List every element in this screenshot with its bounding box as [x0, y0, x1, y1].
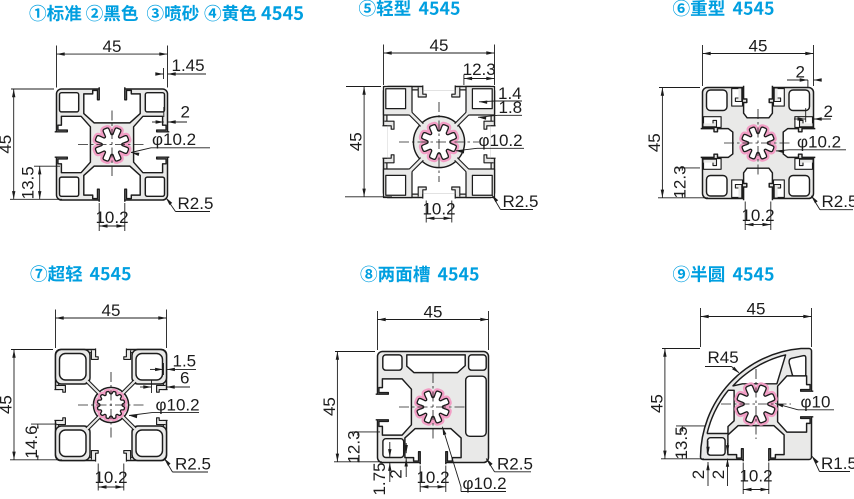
svg-text:1.45: 1.45	[172, 56, 205, 75]
svg-text:φ10.2: φ10.2	[479, 131, 523, 150]
svg-text:2: 2	[181, 103, 190, 122]
svg-text:10.2: 10.2	[94, 468, 127, 487]
svg-text:R1.5: R1.5	[821, 454, 854, 473]
svg-text:13.5: 13.5	[19, 166, 38, 199]
svg-text:13.5: 13.5	[672, 426, 691, 459]
svg-text:45: 45	[647, 394, 666, 413]
svg-text:45: 45	[0, 395, 16, 414]
svg-text:10.2: 10.2	[416, 468, 449, 487]
svg-text:10.2: 10.2	[739, 467, 772, 486]
svg-text:R2.5: R2.5	[503, 192, 539, 211]
svg-text:45: 45	[747, 299, 766, 318]
svg-text:1.8: 1.8	[499, 98, 523, 117]
svg-text:45: 45	[347, 132, 366, 151]
svg-text:R2.5: R2.5	[175, 455, 211, 474]
svg-text:45: 45	[0, 135, 15, 154]
svg-text:R2.5: R2.5	[822, 192, 854, 211]
svg-text:45: 45	[320, 397, 339, 416]
svg-text:45: 45	[103, 37, 122, 56]
svg-text:φ10.2: φ10.2	[463, 474, 507, 493]
svg-text:45: 45	[645, 133, 664, 152]
svg-text:2: 2	[824, 102, 833, 121]
svg-text:10.2: 10.2	[95, 208, 128, 227]
svg-text:10.2: 10.2	[422, 200, 455, 219]
svg-text:12.3: 12.3	[345, 430, 364, 463]
svg-text:10.2: 10.2	[741, 206, 774, 225]
svg-text:45: 45	[430, 36, 449, 55]
svg-text:12.3: 12.3	[671, 165, 690, 198]
svg-text:45: 45	[424, 302, 443, 321]
svg-text:6: 6	[180, 369, 189, 388]
svg-text:45: 45	[749, 36, 768, 55]
svg-text:φ10.2: φ10.2	[156, 395, 200, 414]
svg-text:R45: R45	[708, 348, 739, 367]
svg-text:R2.5: R2.5	[178, 194, 214, 213]
svg-text:φ10.2: φ10.2	[797, 133, 841, 152]
svg-text:12.3: 12.3	[463, 60, 496, 79]
svg-text:2: 2	[689, 470, 708, 479]
svg-text:2: 2	[387, 469, 406, 478]
svg-text:φ10.2: φ10.2	[152, 130, 196, 149]
svg-text:φ10: φ10	[801, 393, 831, 412]
svg-text:2: 2	[709, 470, 728, 479]
svg-text:14.6: 14.6	[22, 425, 41, 458]
svg-text:R2.5: R2.5	[497, 454, 533, 473]
svg-text:2: 2	[796, 63, 805, 82]
svg-text:45: 45	[102, 301, 121, 320]
